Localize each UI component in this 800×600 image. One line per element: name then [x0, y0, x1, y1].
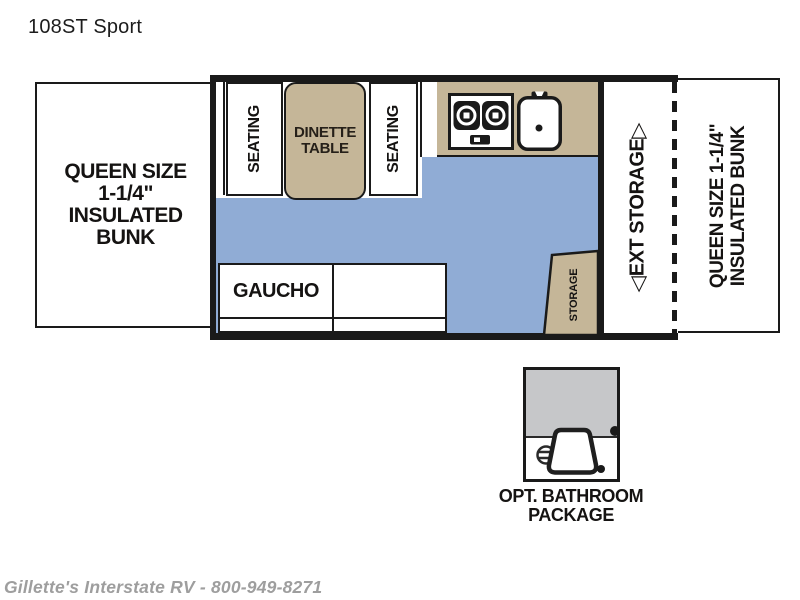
right-bunk-label: QUEEN SIZE 1-1/4" INSULATED BUNK	[707, 123, 749, 287]
bathroom-caption-line1: OPT. BATHROOM	[481, 487, 661, 506]
left-bunk-line1: QUEEN SIZE	[64, 161, 186, 183]
counter-end-panel	[420, 82, 437, 157]
left-bunk-label: QUEEN SIZE 1-1/4" INSULATED BUNK	[64, 161, 186, 249]
gaucho-extension	[332, 263, 447, 319]
dinette-table-label: DINETTE TABLE	[294, 125, 356, 157]
dinette-line2: TABLE	[294, 141, 356, 157]
stove-icon	[448, 93, 514, 150]
gaucho: GAUCHO	[218, 263, 334, 319]
toilet-icon	[526, 370, 623, 485]
bathroom-box	[523, 367, 620, 482]
bathroom-caption: OPT. BATHROOM PACKAGE	[481, 487, 661, 525]
seating-right: SEATING	[369, 82, 418, 196]
storage-cabinet: STORAGE	[540, 248, 602, 338]
left-bunk: QUEEN SIZE 1-1/4" INSULATED BUNK	[35, 82, 216, 328]
bathroom-caption-line2: PACKAGE	[481, 506, 661, 525]
ext-storage-column: ◁ EXT STORAGE ▷	[604, 82, 672, 333]
dealer-watermark: Gillette's Interstate RV - 800-949-8271	[4, 577, 322, 598]
page-title: 108ST Sport	[28, 16, 142, 39]
gaucho-label: GAUCHO	[233, 280, 319, 303]
interior-edge-line	[223, 82, 225, 195]
left-bunk-line3: INSULATED	[64, 205, 186, 227]
seating-left-label: SEATING	[246, 105, 264, 173]
gaucho-step-left	[218, 317, 334, 333]
dinette-line1: DINETTE	[294, 125, 356, 141]
dinette-table: DINETTE TABLE	[284, 82, 366, 200]
gaucho-step-right	[332, 317, 447, 333]
ext-storage-rotated: ◁ EXT STORAGE ▷	[627, 123, 650, 293]
storage-label: STORAGE	[568, 269, 580, 322]
body-dashed-edge	[672, 82, 677, 333]
ext-storage-arrow-down-icon: ◁	[628, 276, 649, 292]
ext-storage-label: EXT STORAGE	[627, 139, 650, 277]
seating-left: SEATING	[226, 82, 283, 196]
right-bunk-line2: INSULATED BUNK	[728, 123, 749, 287]
seating-right-label: SEATING	[385, 105, 403, 173]
left-bunk-line4: BUNK	[64, 227, 186, 249]
sink-icon	[514, 90, 564, 154]
left-bunk-line2: 1-1/4"	[64, 183, 186, 205]
right-bunk-line1: QUEEN SIZE 1-1/4"	[707, 123, 728, 287]
right-bunk: QUEEN SIZE 1-1/4" INSULATED BUNK	[678, 78, 780, 333]
ext-storage-arrow-up-icon: ▷	[628, 123, 649, 139]
